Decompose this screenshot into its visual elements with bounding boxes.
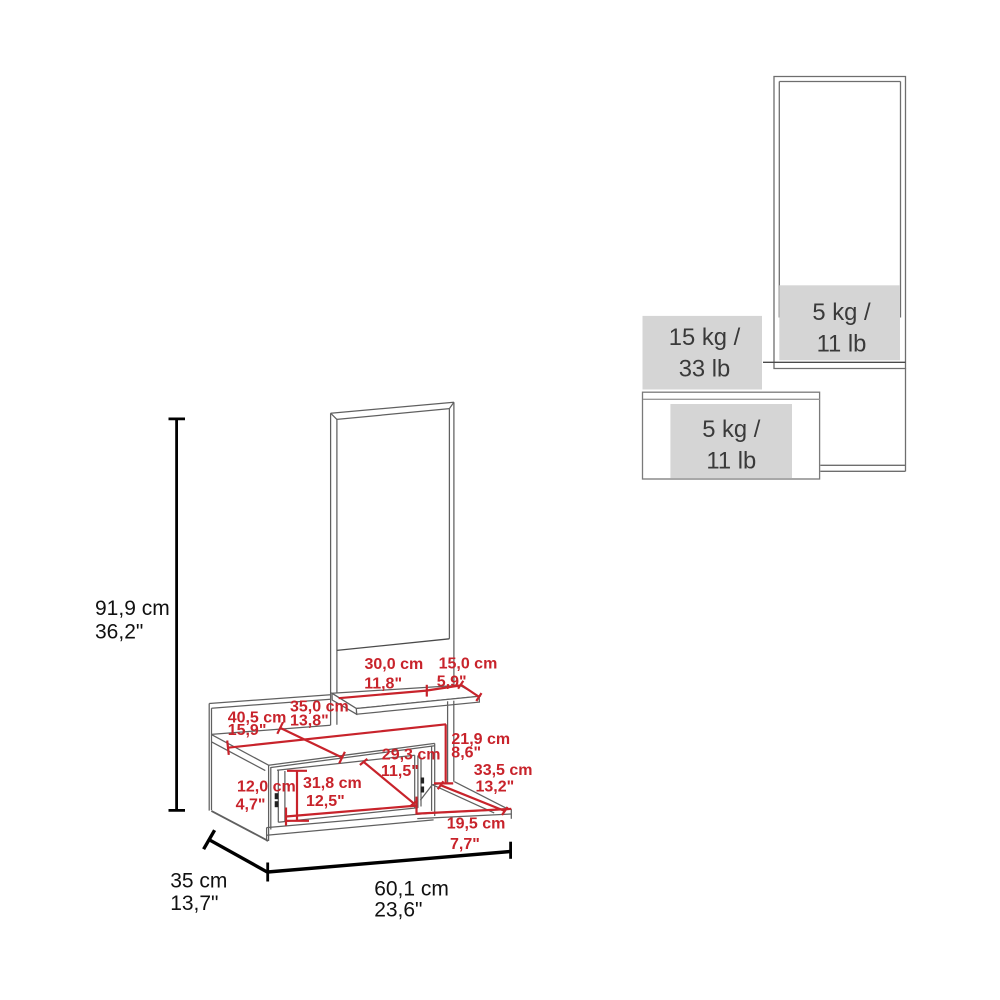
svg-text:12,5": 12,5"	[306, 793, 345, 810]
svg-text:35 cm: 35 cm	[170, 870, 227, 893]
svg-text:4,7": 4,7"	[236, 796, 266, 813]
svg-text:91,9 cm: 91,9 cm	[95, 597, 170, 620]
svg-text:5 kg /: 5 kg /	[702, 416, 761, 443]
svg-text:11 lb: 11 lb	[817, 330, 867, 357]
svg-text:13,7": 13,7"	[170, 892, 218, 915]
svg-text:11 lb: 11 lb	[706, 448, 756, 475]
svg-text:33 lb: 33 lb	[679, 355, 731, 382]
svg-text:30,0 cm: 30,0 cm	[365, 656, 424, 673]
svg-text:5,9": 5,9"	[437, 674, 467, 691]
svg-text:13,2": 13,2"	[476, 778, 515, 795]
svg-text:15 kg /: 15 kg /	[669, 324, 741, 351]
svg-text:33,5 cm: 33,5 cm	[474, 762, 533, 779]
svg-text:31,8 cm: 31,8 cm	[303, 775, 362, 792]
svg-text:15,9": 15,9"	[228, 722, 267, 739]
svg-text:8,6": 8,6"	[451, 745, 481, 762]
svg-text:11,5": 11,5"	[381, 763, 419, 780]
svg-text:36,2": 36,2"	[95, 620, 143, 643]
svg-text:11,8": 11,8"	[364, 675, 402, 692]
svg-text:19,5 cm: 19,5 cm	[447, 815, 506, 832]
svg-text:7,7": 7,7"	[450, 836, 480, 853]
svg-text:60,1 cm: 60,1 cm	[374, 878, 449, 901]
svg-text:23,6": 23,6"	[374, 899, 422, 922]
svg-text:5 kg /: 5 kg /	[812, 299, 871, 326]
svg-text:29,3 cm: 29,3 cm	[382, 746, 441, 763]
svg-text:13,8": 13,8"	[290, 713, 329, 730]
svg-text:12,0 cm: 12,0 cm	[237, 778, 296, 795]
svg-text:15,0 cm: 15,0 cm	[439, 656, 498, 673]
